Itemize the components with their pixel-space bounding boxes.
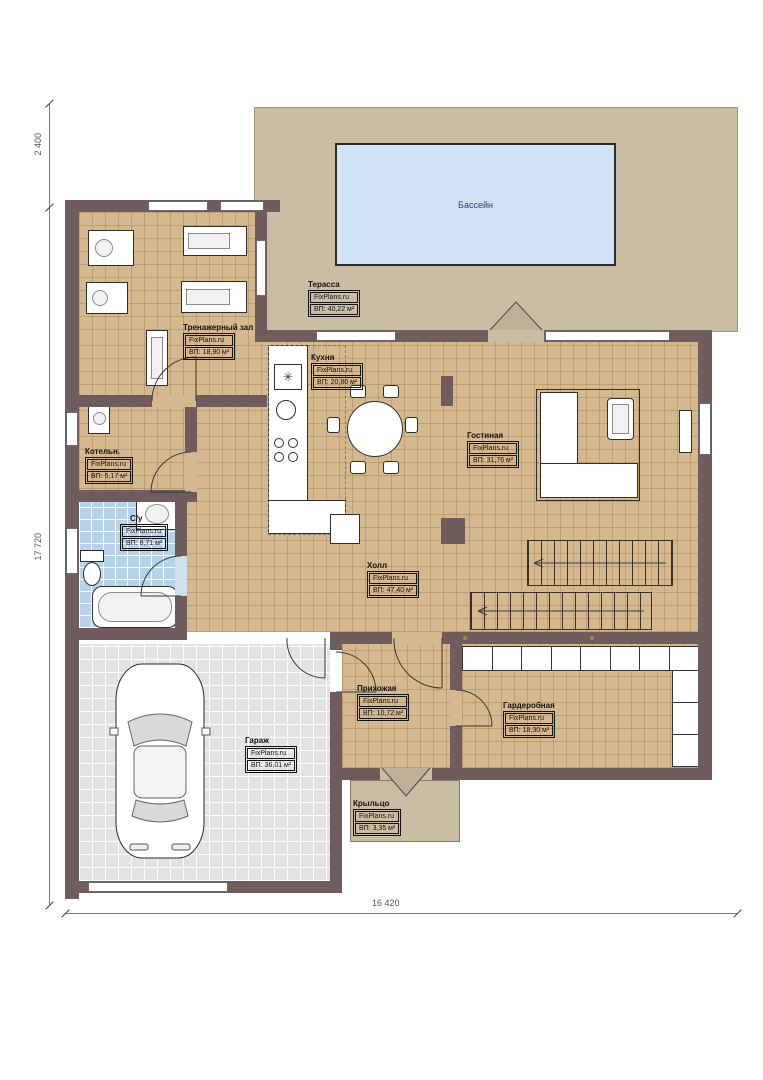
- garage-door: [88, 882, 228, 892]
- dimension-value-left: 17 720: [33, 533, 43, 561]
- kitchen-island: [330, 514, 360, 544]
- room-label-kitchen: Кухня FixPlans.ru ВП: 20,80 м²: [311, 353, 363, 390]
- terrace-door-opening: [488, 330, 544, 342]
- room-label-hall: Холл FixPlans.ru ВП: 47,40 м²: [367, 561, 419, 598]
- room-source: FixPlans.ru: [505, 713, 553, 724]
- treadmill: [183, 226, 247, 256]
- room-source: FixPlans.ru: [359, 696, 407, 707]
- room-area: ВП: 10,72 м²: [359, 708, 407, 719]
- tv-unit: [679, 410, 692, 453]
- dimension-value-top-left: 2 400: [33, 133, 43, 156]
- room-name: Терасса: [308, 280, 360, 289]
- room-source: FixPlans.ru: [185, 335, 233, 346]
- gym-bench: [146, 330, 168, 386]
- dining-chair: [383, 461, 399, 474]
- structural-column: [441, 518, 465, 544]
- exterior-wall-right: [698, 330, 712, 780]
- toilet-tank: [80, 550, 104, 562]
- closet-column: [672, 670, 698, 766]
- room-area: ВП: 18,90 м²: [185, 347, 233, 358]
- porch-door-opening: [380, 768, 432, 780]
- stove: [272, 436, 300, 464]
- wall-boiler-bathroom: [65, 490, 197, 502]
- room-name: Котельн.: [85, 447, 133, 456]
- window: [66, 528, 78, 574]
- dining-table: [347, 401, 403, 457]
- pool-label: Бассейн: [458, 200, 493, 210]
- room-source: FixPlans.ru: [247, 748, 295, 759]
- exercise-bike: [88, 230, 134, 266]
- dining-chair: [350, 461, 366, 474]
- armchair: [607, 398, 634, 440]
- wall-light-dot: [463, 636, 467, 640]
- exercise-bike: [86, 282, 128, 314]
- window: [66, 412, 78, 446]
- room-label-terrace: Терасса FixPlans.ru ВП: 40,22 м²: [308, 280, 360, 317]
- staircase-upper-flight: [527, 540, 673, 586]
- room-label-entry: Прихожая FixPlans.ru ВП: 10,72 м²: [357, 684, 409, 721]
- room-area: ВП: 36,01 м²: [247, 760, 295, 771]
- door-opening: [185, 452, 197, 492]
- room-area: ВП: 40,22 м²: [310, 304, 358, 315]
- room-area: ВП: 5,17 м²: [87, 471, 131, 482]
- window: [256, 240, 266, 296]
- fridge-snowflake-icon: ✳: [274, 364, 302, 390]
- room-label-garage: Гараж FixPlans.ru ВП: 36,01 м²: [245, 736, 297, 773]
- room-name: Прихожая: [357, 684, 409, 693]
- dimension-value-bottom: 16 420: [372, 898, 400, 908]
- kitchen-sink: [276, 400, 296, 420]
- room-name: Холл: [367, 561, 419, 570]
- room-name: С/у: [130, 514, 168, 523]
- room-area: ВП: 31,76 м²: [469, 455, 517, 466]
- room-source: FixPlans.ru: [313, 365, 361, 376]
- door-opening: [285, 632, 325, 644]
- room-name: Тренажерный зал: [183, 323, 253, 332]
- room-source: FixPlans.ru: [122, 526, 166, 537]
- corner-sofa: [540, 463, 638, 498]
- dining-chair: [405, 417, 418, 433]
- door-opening: [152, 395, 196, 407]
- door-opening: [392, 632, 442, 644]
- room-area: ВП: 8,71 м²: [122, 538, 166, 549]
- door-opening: [450, 690, 462, 726]
- dining-chair: [383, 385, 399, 398]
- toilet: [83, 562, 101, 586]
- structural-column: [441, 376, 453, 406]
- floor-plan: Бассейн: [0, 0, 763, 1080]
- room-label-porch: Крыльцо FixPlans.ru ВП: 3,35 м²: [353, 799, 401, 836]
- dimension-line-top-left: [49, 103, 50, 207]
- room-area: ВП: 47,40 м²: [369, 585, 417, 596]
- room-source: FixPlans.ru: [369, 573, 417, 584]
- car: [108, 658, 212, 864]
- dimension-line-bottom: [65, 913, 737, 914]
- window: [148, 201, 208, 211]
- door-opening: [175, 556, 187, 596]
- dining-chair: [327, 417, 340, 433]
- wall-bathroom-garage: [65, 628, 187, 640]
- swimming-pool: Бассейн: [335, 143, 616, 266]
- bathtub: [92, 586, 178, 628]
- window: [316, 331, 396, 341]
- room-source: FixPlans.ru: [355, 811, 399, 822]
- wall-hall-bottom: [330, 632, 712, 644]
- door-opening: [330, 650, 342, 692]
- room-source: FixPlans.ru: [87, 459, 131, 470]
- room-label-wardrobe: Гардеробная FixPlans.ru ВП: 18,30 м²: [503, 701, 555, 738]
- room-label-gym: Тренажерный зал FixPlans.ru ВП: 18,90 м²: [183, 323, 253, 360]
- room-source: FixPlans.ru: [310, 292, 358, 303]
- room-area: ВП: 18,30 м²: [505, 725, 553, 736]
- room-label-bathroom: С/у FixPlans.ru ВП: 8,71 м²: [120, 514, 168, 551]
- wall-light-dot: [590, 636, 594, 640]
- room-name: Гостиная: [467, 431, 519, 440]
- room-name: Гардеробная: [503, 701, 555, 710]
- staircase-lower-flight: [470, 592, 652, 630]
- window: [699, 403, 711, 455]
- window: [220, 201, 264, 211]
- room-area: ВП: 3,35 м²: [355, 823, 399, 834]
- room-label-boiler: Котельн. FixPlans.ru ВП: 5,17 м²: [85, 447, 133, 484]
- room-name: Кухня: [311, 353, 363, 362]
- window: [545, 331, 670, 341]
- room-source: FixPlans.ru: [469, 443, 517, 454]
- room-name: Гараж: [245, 736, 297, 745]
- room-area: ВП: 20,80 м²: [313, 377, 361, 388]
- boiler-unit: [88, 404, 110, 434]
- room-name: Крыльцо: [353, 799, 401, 808]
- closet-row: [462, 646, 698, 670]
- room-label-living: Гостиная FixPlans.ru ВП: 31,76 м²: [467, 431, 519, 468]
- dimension-line-left: [49, 207, 50, 905]
- treadmill: [181, 281, 247, 313]
